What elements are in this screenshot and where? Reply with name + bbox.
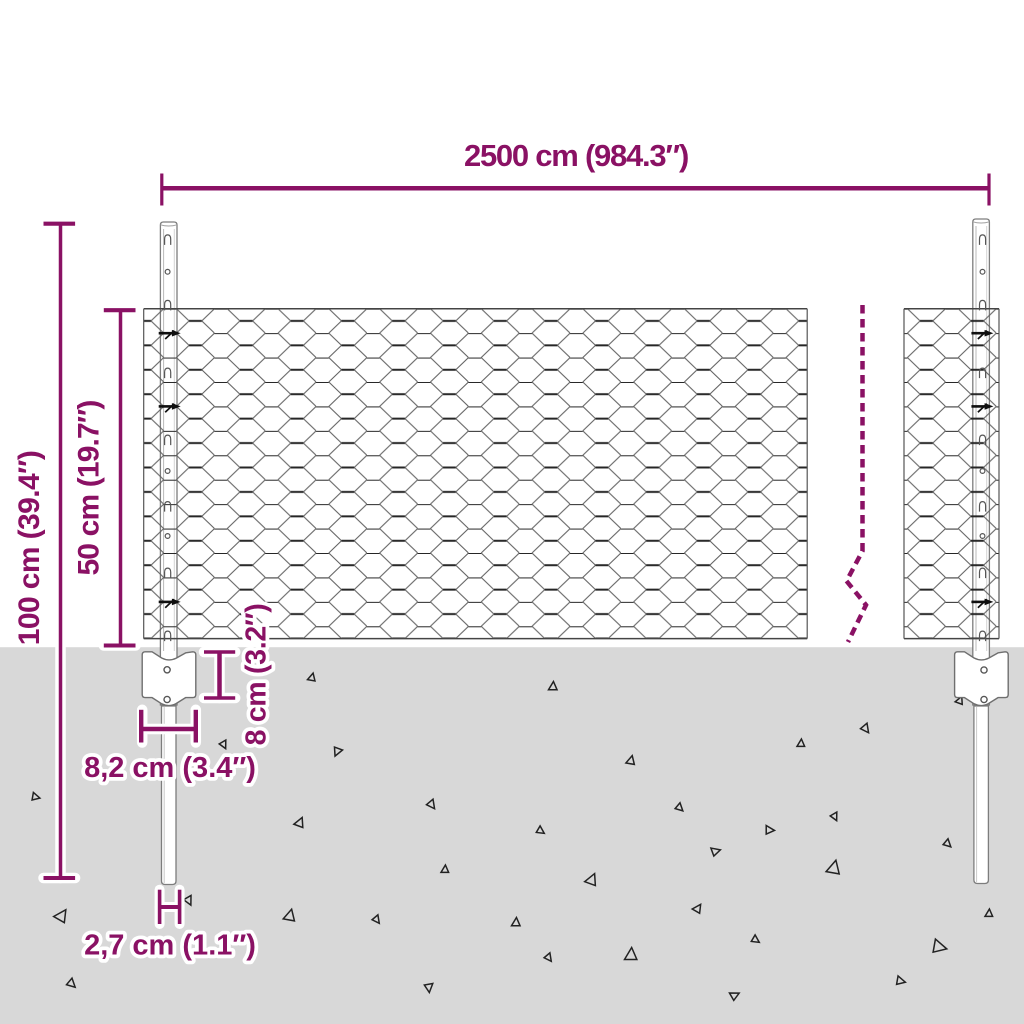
svg-text:8 cm (3.2″): 8 cm (3.2″): [241, 604, 273, 746]
svg-text:2500 cm (984.3″): 2500 cm (984.3″): [464, 138, 688, 173]
svg-text:2,7 cm (1.1″): 2,7 cm (1.1″): [84, 930, 256, 962]
svg-text:8,2 cm (3.4″): 8,2 cm (3.4″): [84, 752, 256, 784]
svg-text:100 cm (39.4″): 100 cm (39.4″): [13, 451, 46, 645]
svg-text:50 cm (19.7″): 50 cm (19.7″): [73, 400, 106, 575]
